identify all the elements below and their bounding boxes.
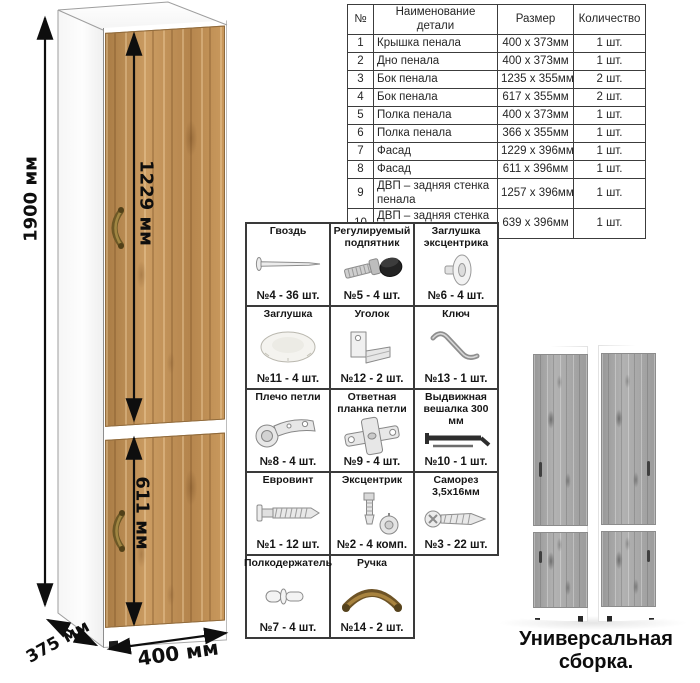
table-row: 8Фасад611 х 396мм1 шт. <box>348 161 646 179</box>
hardware-item-count: №11 - 4 шт. <box>257 373 319 386</box>
gray-upper-door <box>601 353 656 525</box>
hardware-item: Евровинт №1 - 12 шт. <box>246 472 330 555</box>
cover-cap-icon <box>251 321 325 373</box>
part-qty: 1 шт. <box>574 107 646 125</box>
part-size: 1257 х 396мм <box>498 179 574 209</box>
hardware-item-name: Плечо петли <box>255 392 320 404</box>
hardware-item: Ручка №14 - 2 шт. <box>330 555 414 638</box>
part-name: Полка пенала <box>374 125 498 143</box>
hardware-item-count: №8 - 4 шт. <box>260 456 316 469</box>
hanger-rod-icon <box>419 427 493 456</box>
part-num: 9 <box>348 179 374 209</box>
part-qty: 1 шт. <box>574 35 646 53</box>
adjustable-foot-icon <box>335 250 409 291</box>
gray-upper-door <box>533 354 588 526</box>
hardware-item-count: №14 - 2 шт. <box>341 622 404 635</box>
part-name: Фасад <box>374 161 498 179</box>
table-row: 2Дно пенала400 х 373мм1 шт. <box>348 53 646 71</box>
header-name: Наименование детали <box>374 5 498 35</box>
door-handle-mark <box>539 462 542 477</box>
table-row: 3Бок пенала1235 х 355мм2 шт. <box>348 71 646 89</box>
part-size: 611 х 396мм <box>498 161 574 179</box>
hardware-item-name: Выдвижная вешалка 300 мм <box>416 392 496 427</box>
cabinet-foot <box>578 616 583 622</box>
cabinet-foot <box>109 641 118 649</box>
hardware-item-count: №1 - 12 шт. <box>257 539 320 552</box>
part-size: 400 х 373мм <box>498 107 574 125</box>
shelf-pin-icon <box>251 570 325 622</box>
hardware-item-name: Регулируемый подпятник <box>332 226 412 250</box>
part-size: 1235 х 355мм <box>498 71 574 89</box>
hardware-item: Уголок №12 - 2 шт. <box>330 306 414 389</box>
parts-table-header: № Наименование детали Размер Количество <box>348 5 646 35</box>
table-row: 9ДВП – задняя стенка пенала1257 х 396мм1… <box>348 179 646 209</box>
hardware-item-name: Заглушка эксцентрика <box>416 226 496 250</box>
assembly-caption: Универсальная сборка. <box>490 628 700 674</box>
part-qty: 2 шт. <box>574 89 646 107</box>
upper-door-handle-icon <box>108 205 125 252</box>
cabinet-foot <box>607 616 612 622</box>
part-size: 1229 х 396мм <box>498 143 574 161</box>
hardware-item-name: Заглушка <box>264 309 313 321</box>
gray-lower-door <box>533 532 588 608</box>
hardware-grid-empty-cell <box>414 555 498 638</box>
hardware-item: Плечо петли №8 - 4 шт. <box>246 389 330 472</box>
part-qty: 1 шт. <box>574 161 646 179</box>
part-size: 366 х 355мм <box>498 125 574 143</box>
part-qty: 1 шт. <box>574 179 646 209</box>
hinge-arm-icon <box>251 404 325 456</box>
part-size: 400 х 373мм <box>498 35 574 53</box>
handle-icon <box>335 570 409 622</box>
hardware-item-name: Ручка <box>357 558 387 570</box>
part-size: 400 х 373мм <box>498 53 574 71</box>
lower-door-handle-icon <box>109 508 126 555</box>
header-qty: Количество <box>574 5 646 35</box>
part-qty: 1 шт. <box>574 53 646 71</box>
hardware-item-name: Полкодержатель <box>244 558 332 570</box>
hardware-item-count: №10 - 1 шт. <box>425 456 488 469</box>
part-qty: 1 шт. <box>574 125 646 143</box>
nail-icon <box>251 238 325 290</box>
hardware-item-name: Эксцентрик <box>342 475 402 487</box>
part-qty: 1 шт. <box>574 143 646 161</box>
header-num: № <box>348 5 374 35</box>
table-row: 7Фасад1229 х 396мм1 шт. <box>348 143 646 161</box>
part-name: Фасад <box>374 143 498 161</box>
part-num: 6 <box>348 125 374 143</box>
euroscrew-icon <box>251 487 325 539</box>
door-handle-mark <box>539 551 542 563</box>
hardware-item-count: №4 - 36 шт. <box>257 290 320 303</box>
table-row: 4Бок пенала617 х 355мм2 шт. <box>348 89 646 107</box>
cam-cover-icon <box>419 250 493 291</box>
header-size: Размер <box>498 5 574 35</box>
screw-icon <box>419 499 493 540</box>
table-row: 5Полка пенала400 х 373мм1 шт. <box>348 107 646 125</box>
hardware-item: Заглушка №11 - 4 шт. <box>246 306 330 389</box>
hardware-item: Регулируемый подпятник №5 - 4 шт. <box>330 223 414 306</box>
key-icon <box>419 321 493 373</box>
hardware-item: Выдвижная вешалка 300 мм №10 - 1 шт. <box>414 389 498 472</box>
part-num: 1 <box>348 35 374 53</box>
hardware-item-name: Гвоздь <box>270 226 307 238</box>
gray-cabinet-left <box>508 346 588 622</box>
part-qty: 2 шт. <box>574 71 646 89</box>
dimension-depth: 375 мм <box>23 616 93 667</box>
part-name: Бок пенала <box>374 71 498 89</box>
assembly-sheet: 1900 мм 1229 мм 611 мм 375 мм 400 мм № Н… <box>0 0 700 683</box>
hardware-item: Ответная планка петли №9 - 4 шт. <box>330 389 414 472</box>
hardware-item: Саморез 3,5х16мм №3 - 22 шт. <box>414 472 498 555</box>
corner-bracket-icon <box>335 321 409 373</box>
hardware-item-count: №6 - 4 шт. <box>428 290 484 303</box>
hardware-item-count: №9 - 4 шт. <box>344 456 400 469</box>
hardware-item: Ключ №13 - 1 шт. <box>414 306 498 389</box>
hinge-plate-icon <box>335 416 409 457</box>
part-num: 3 <box>348 71 374 89</box>
hardware-item-name: Уголок <box>355 309 390 321</box>
part-name: Бок пенала <box>374 89 498 107</box>
hardware-item-count: №13 - 1 шт. <box>425 373 488 386</box>
part-num: 2 <box>348 53 374 71</box>
hardware-item: Гвоздь №4 - 36 шт. <box>246 223 330 306</box>
part-name: Крышка пенала <box>374 35 498 53</box>
gray-cabinet-right <box>598 345 678 622</box>
door-handle-mark <box>647 461 650 476</box>
part-num: 8 <box>348 161 374 179</box>
table-row: 1Крышка пенала400 х 373мм1 шт. <box>348 35 646 53</box>
hardware-item-name: Саморез 3,5х16мм <box>416 475 496 499</box>
part-name: Дно пенала <box>374 53 498 71</box>
hardware-item-count: №7 - 4 шт. <box>260 622 316 635</box>
hardware-item-name: Евровинт <box>263 475 314 487</box>
hardware-item: Эксцентрик №2 - 4 комп. <box>330 472 414 555</box>
hardware-item-count: №12 - 2 шт. <box>341 373 404 386</box>
dimension-upper-door: 1229 мм <box>136 160 157 246</box>
part-qty: 1 шт. <box>574 209 646 239</box>
dimension-lower-door: 611 мм <box>132 476 153 549</box>
hardware-item: Заглушка эксцентрика №6 - 4 шт. <box>414 223 498 306</box>
parts-table: № Наименование детали Размер Количество … <box>347 4 646 239</box>
gray-lower-door <box>601 531 656 607</box>
part-num: 7 <box>348 143 374 161</box>
dimension-height: 1900 мм <box>21 156 42 242</box>
hardware-item-count: №2 - 4 комп. <box>337 539 407 552</box>
table-row: 6Полка пенала366 х 355мм1 шт. <box>348 125 646 143</box>
door-handle-mark <box>647 550 650 562</box>
part-num: 5 <box>348 107 374 125</box>
part-size: 617 х 355мм <box>498 89 574 107</box>
part-size: 639 х 396мм <box>498 209 574 239</box>
hardware-item-name: Ключ <box>442 309 470 321</box>
cam-lock-icon <box>335 487 409 539</box>
part-name: Полка пенала <box>374 107 498 125</box>
cabinet-side-panel <box>58 10 103 647</box>
hardware-item: Полкодержатель №7 - 4 шт. <box>246 555 330 638</box>
hardware-item-name: Ответная планка петли <box>332 392 412 416</box>
hardware-item-count: №3 - 22 шт. <box>425 539 488 552</box>
hardware-item-count: №5 - 4 шт. <box>344 290 400 303</box>
part-name: ДВП – задняя стенка пенала <box>374 179 498 209</box>
hardware-grid: Гвоздь №4 - 36 шт. Регулируемый подпятни… <box>245 222 499 639</box>
part-num: 4 <box>348 89 374 107</box>
